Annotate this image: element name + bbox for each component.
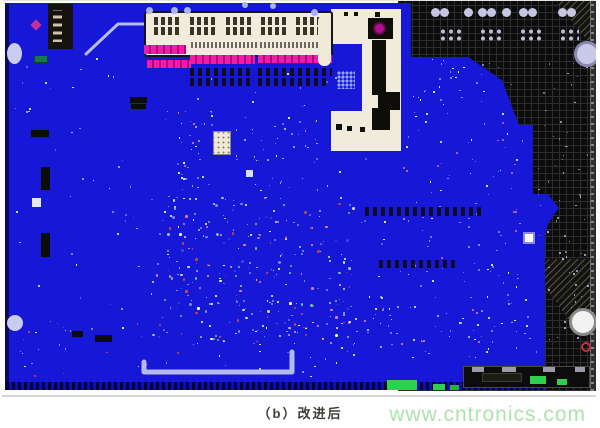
grid-pad-6 [502, 8, 511, 17]
pad-white-ringed [523, 232, 535, 244]
pad-row-3 [258, 68, 332, 76]
mounting-hole-left-top [7, 43, 22, 64]
dot-matrix [337, 71, 355, 89]
via-5 [242, 2, 248, 8]
pad-row-4 [258, 78, 326, 86]
pad-row-mid [365, 207, 483, 216]
pad-row-2 [190, 78, 254, 86]
cutout-dot-4 [344, 12, 348, 16]
circle-bottom-right [569, 308, 596, 336]
cutout-ic-2 [372, 40, 386, 95]
bar-dark-inner [482, 373, 522, 382]
via-1 [146, 7, 153, 14]
green-pad-1 [387, 380, 417, 390]
pcb-layout-screenshot [2, 0, 596, 397]
pad-white-2 [246, 170, 253, 177]
bar-green-1 [530, 376, 546, 384]
cutout-dot-3 [360, 127, 365, 132]
pink-pads-a [144, 45, 186, 54]
pad-row-1 [190, 68, 254, 76]
pad-row-mid-2 [379, 260, 457, 268]
watermark: www.cntronics.com [389, 403, 586, 427]
grid-pad-4 [478, 8, 487, 17]
bar-pad-4 [575, 367, 585, 372]
grid-pad-1 [431, 8, 440, 17]
grid-pad-7 [519, 8, 528, 17]
grid-pad-2 [440, 8, 449, 17]
pad-grid-3 [519, 28, 542, 42]
bar-pad-2 [502, 367, 516, 372]
grid-pad-9 [558, 8, 567, 17]
components-layer [2, 1, 596, 395]
grid-pad-10 [567, 8, 576, 17]
cutout-led-magenta [373, 22, 386, 35]
cutout-dot-5 [354, 12, 358, 16]
via-4 [311, 9, 318, 16]
pink-pads-b [147, 60, 191, 68]
grid-pad-8 [528, 8, 537, 17]
pad-white-1 [32, 198, 41, 207]
chip-center [213, 131, 231, 155]
via-6 [270, 3, 276, 9]
cutout-dot-2 [347, 126, 352, 131]
mounting-hole-left-bottom [7, 315, 23, 331]
cutout-mini-board [318, 15, 331, 66]
green-pad-3 [450, 385, 459, 390]
bar-dark-4 [41, 167, 50, 190]
bar-dark-3 [31, 130, 49, 137]
green-chip-left [34, 55, 48, 63]
via-2 [171, 7, 178, 14]
circle-top-right [574, 41, 596, 67]
via-3 [184, 7, 191, 14]
pad-grid-4 [559, 28, 579, 42]
ic-top-left [48, 4, 73, 49]
bar-dark-5 [41, 233, 50, 257]
bar-dark-6 [95, 335, 112, 342]
article-figure-page: （b）改进后 www.cntronics.com [0, 0, 600, 428]
pink-pads-c [190, 55, 255, 64]
bar-dark-1 [130, 97, 147, 103]
ring-red [581, 342, 591, 352]
cutout-dot-6 [375, 12, 380, 17]
bar-dark-7 [72, 331, 83, 337]
cutout-dot-1 [336, 124, 342, 130]
bar-dark-2 [131, 104, 146, 109]
green-pad-2 [433, 384, 445, 390]
bar-pad-1 [472, 367, 484, 372]
grid-pad-5 [487, 8, 496, 17]
bar-green-2 [557, 379, 567, 385]
cutout-ic-4 [372, 108, 390, 130]
magenta-diamond [30, 19, 41, 30]
pad-grid-2 [479, 28, 502, 42]
bar-pad-3 [543, 367, 555, 372]
pad-grid-1 [439, 28, 462, 42]
grid-pad-3 [464, 8, 473, 17]
